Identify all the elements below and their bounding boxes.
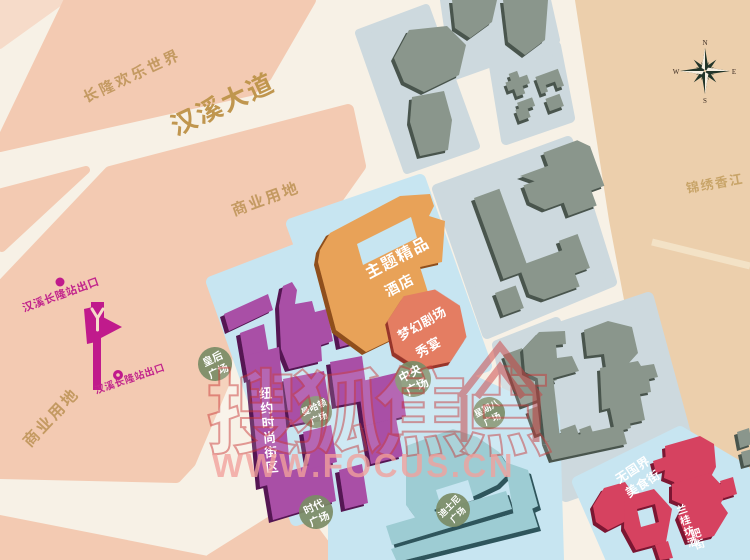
svg-text:N: N xyxy=(702,39,707,47)
svg-text:W: W xyxy=(673,68,680,76)
svg-text:E: E xyxy=(732,68,736,76)
svg-text:WWW.FOCUS.CN: WWW.FOCUS.CN xyxy=(212,447,515,484)
svg-text:S: S xyxy=(703,97,707,105)
